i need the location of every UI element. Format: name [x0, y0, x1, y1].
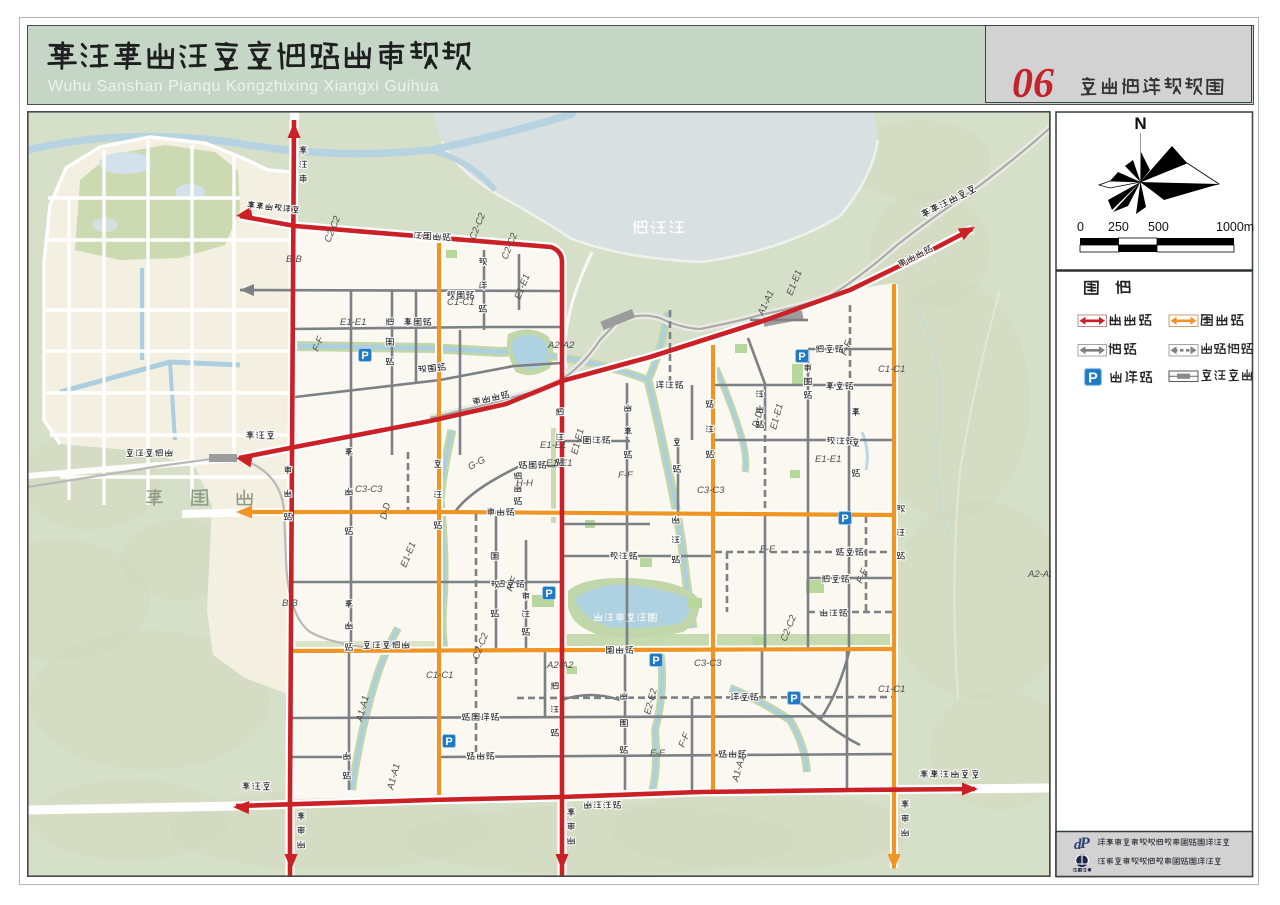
svg-text:0: 0	[1077, 220, 1084, 234]
svg-text:1000m: 1000m	[1216, 220, 1254, 234]
svg-text:P: P	[1088, 371, 1098, 387]
svg-text:P: P	[1079, 835, 1090, 852]
svg-text:250: 250	[1108, 220, 1129, 234]
svg-text:500: 500	[1148, 220, 1169, 234]
svg-text:N: N	[1134, 114, 1146, 133]
